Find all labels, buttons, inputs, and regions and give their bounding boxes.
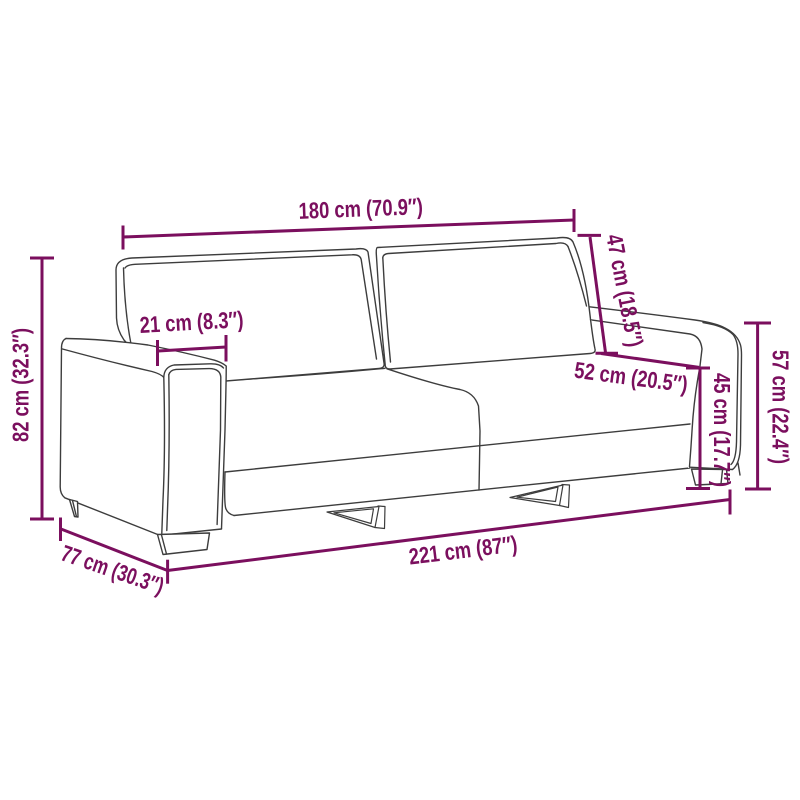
svg-text:180 cm (70.9″): 180 cm (70.9″)	[298, 194, 423, 224]
svg-text:82 cm (32.3″): 82 cm (32.3″)	[9, 328, 34, 442]
svg-text:57 cm (22.4″): 57 cm (22.4″)	[767, 350, 792, 464]
svg-text:45 cm (17.7″): 45 cm (17.7″)	[708, 373, 733, 487]
